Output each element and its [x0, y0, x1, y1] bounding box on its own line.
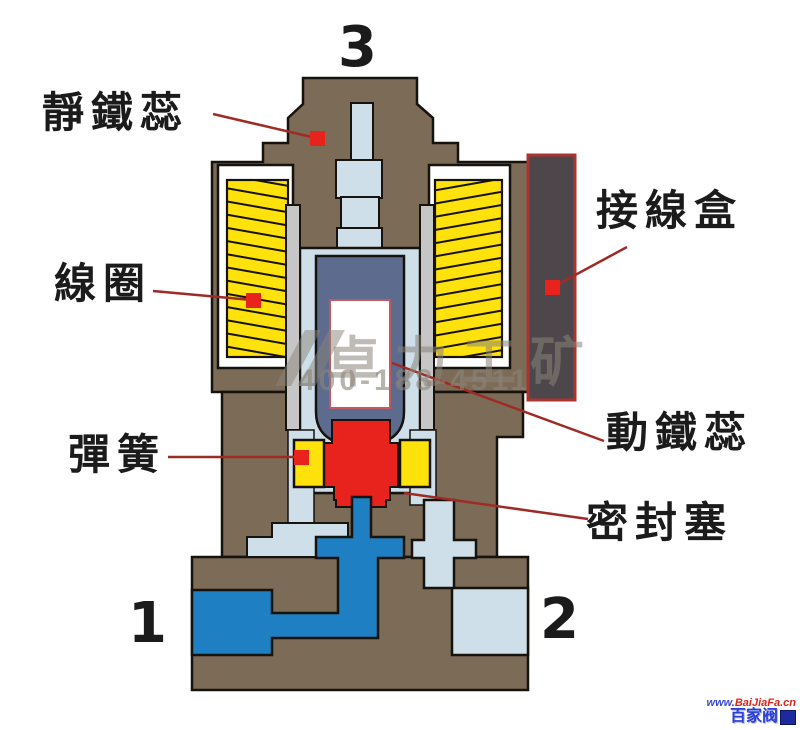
- coil-left: [227, 180, 288, 357]
- spring-right: [400, 440, 430, 487]
- seal-plug: [324, 420, 398, 507]
- dot-spring: [294, 450, 309, 465]
- label-coil: 線圈: [54, 263, 152, 305]
- label-static-core: 靜鐵蕊: [42, 92, 189, 134]
- site-logo-cn: 百家阀: [707, 709, 796, 726]
- dot-junction-box: [545, 280, 560, 295]
- label-spring: 彈簧: [68, 434, 166, 476]
- port-number-2: 2: [540, 592, 579, 648]
- label-junction-box: 接線盒: [596, 190, 743, 232]
- label-seal-plug: 密封塞: [586, 502, 733, 544]
- logo-brand-cn: 百家阀: [730, 709, 778, 726]
- port-number-1: 1: [128, 596, 167, 652]
- logo-url-brand: BaiJiaFa: [735, 697, 780, 709]
- logo-icon: [780, 710, 796, 725]
- dot-coil: [246, 293, 261, 308]
- watermark-phone: 400-188-4511: [298, 364, 531, 398]
- dot-static-core: [310, 131, 325, 146]
- port-number-3: 3: [338, 20, 377, 76]
- stem-top: [351, 103, 373, 163]
- label-moving-core: 動鐵蕊: [606, 412, 753, 454]
- logo-url-prefix: www.: [707, 697, 735, 709]
- solenoid-valve-diagram: 靜鐵蕊 線圈 彈簧 接線盒 動鐵蕊 密封塞 3 1 2 卓力工矿 400-188…: [0, 0, 800, 730]
- logo-url-suffix: .cn: [780, 697, 796, 709]
- stem-plug-wide: [336, 160, 382, 198]
- stem-plug-narrow: [341, 197, 379, 229]
- site-logo: www.BaiJiaFa.cn 百家阀: [707, 698, 796, 726]
